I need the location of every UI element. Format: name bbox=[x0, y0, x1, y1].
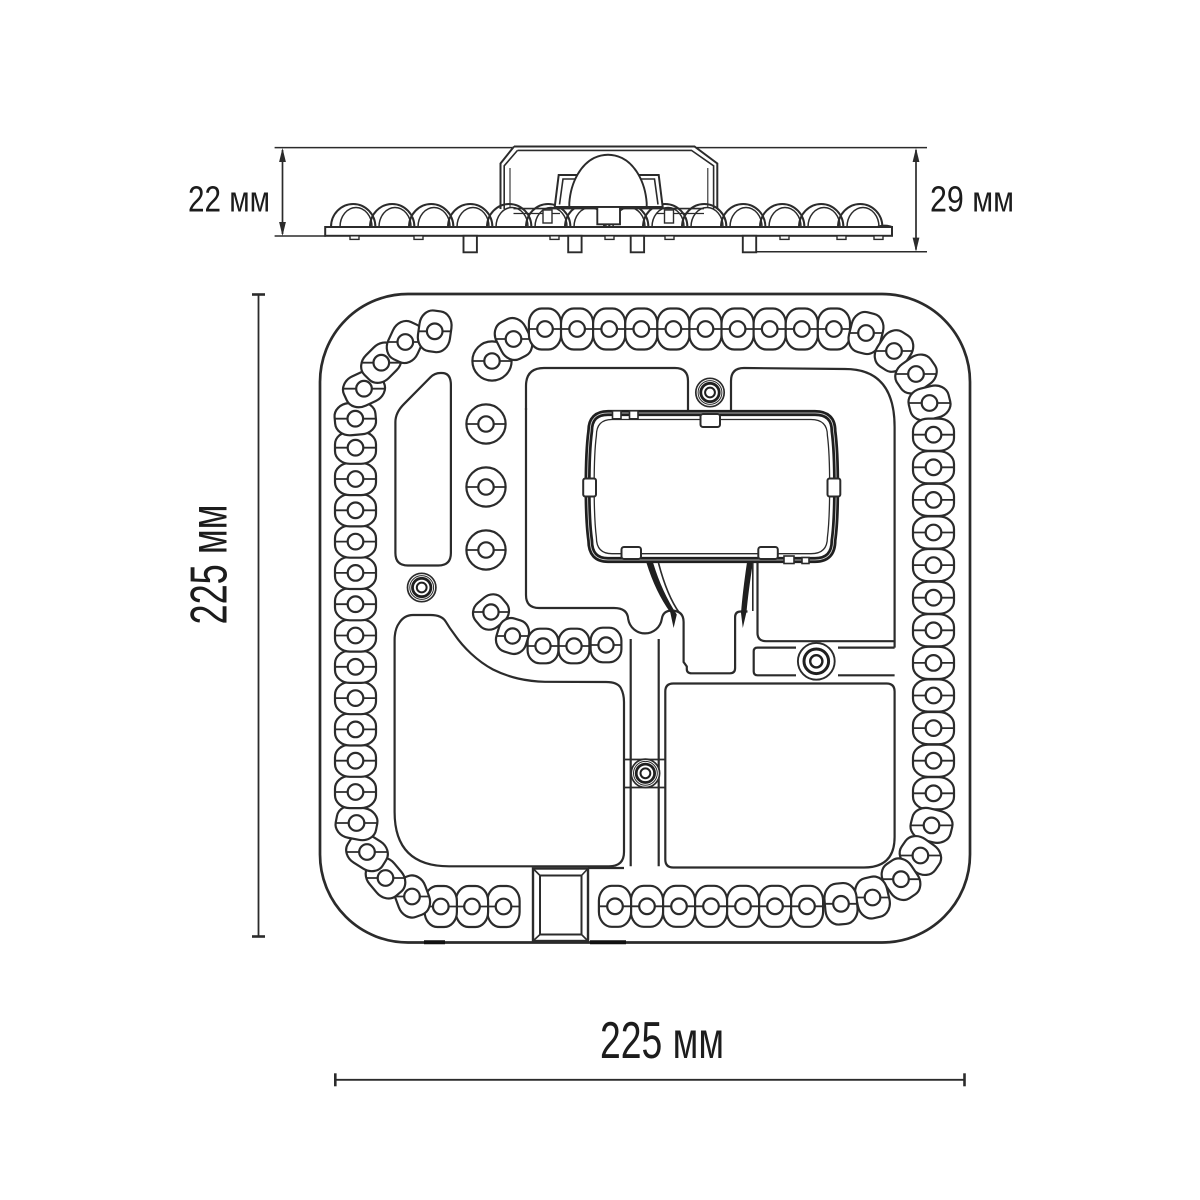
svg-text:225 мм: 225 мм bbox=[181, 505, 239, 625]
svg-text:22 мм: 22 мм bbox=[188, 179, 270, 220]
svg-text:225 мм: 225 мм bbox=[600, 1012, 724, 1070]
svg-text:29 мм: 29 мм bbox=[930, 179, 1014, 220]
